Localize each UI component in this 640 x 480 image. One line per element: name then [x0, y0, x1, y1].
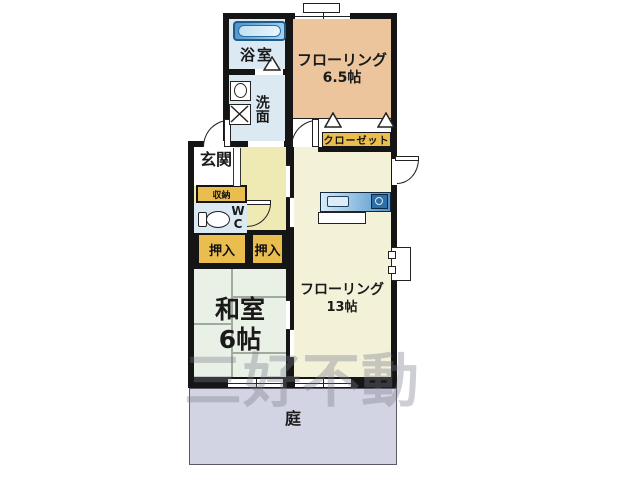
washing-machine-icon: [229, 104, 251, 125]
sliding-door-washitsu-13-a: [286, 300, 290, 330]
washroom-door-opening: [248, 141, 284, 147]
door-arc-right: [397, 159, 419, 184]
right-wall-feature-tick-2: [388, 266, 396, 274]
flooring-6-5-size: 6.5帖: [323, 70, 362, 88]
entrance-label-text: 玄関: [200, 150, 232, 170]
flooring-6-5-label: フローリング 6.5帖: [293, 48, 391, 90]
sink-bowl: [234, 83, 247, 98]
wc-label-c: C: [234, 218, 243, 231]
bathroom-label: 浴室: [229, 45, 285, 65]
oshiire-right-label: 押入: [254, 240, 280, 259]
window-13-tick: [323, 379, 324, 387]
washroom-label-text: 洗面: [252, 95, 270, 123]
flooring-6-5-name: フローリング: [297, 51, 387, 70]
washitsu-name: 和室: [215, 295, 265, 325]
window-washitsu: [228, 379, 283, 387]
window-top: [295, 13, 350, 19]
closet-door-marker-icon-2: [377, 112, 395, 128]
closet-label-text: クローゼット: [324, 132, 390, 147]
entrance-label: 玄関: [195, 149, 237, 171]
wall-bath-65-divider: [285, 13, 293, 147]
kitchen-counter-icon: [320, 192, 391, 212]
garden-label-text: 庭: [285, 409, 301, 429]
door-leaf-wc: [246, 200, 271, 205]
sliding-door-washitsu-13-b: [290, 329, 294, 358]
bathtub-inner: [238, 25, 281, 37]
window-washitsu-tick: [256, 379, 257, 387]
room-flooring-13-floor: [293, 147, 391, 377]
flooring-13-label: フローリング 13帖: [293, 278, 391, 320]
stove-icon: [371, 194, 388, 209]
right-wall-feature-tick-1: [388, 251, 396, 259]
washroom-label: 洗面: [250, 84, 272, 134]
flooring-13-size: 13帖: [326, 300, 357, 316]
wc-label: W C: [228, 203, 248, 233]
wall-bottom: [188, 377, 397, 388]
garden-label: 庭: [189, 407, 397, 431]
wall-13-top: [318, 147, 391, 152]
closet-door-marker-icon-1: [324, 112, 342, 128]
door-leaf-right: [395, 156, 419, 161]
top-vent-marker: [303, 3, 340, 13]
sink-icon: [230, 81, 251, 101]
window-13: [295, 379, 351, 387]
bathtub-icon: [233, 21, 286, 41]
washing-machine-x: [230, 105, 249, 123]
counter-lower: [318, 212, 366, 224]
toilet-icon: [206, 211, 230, 228]
sliding-door-hall-13-a: [286, 165, 290, 198]
oshiire-left-box: 押入: [197, 233, 247, 265]
floor-plan-canvas: 収納 押入 押入 浴室 洗面 フローリング 6.5帖 クローゼット 玄関 W C…: [0, 0, 640, 480]
closet-label-box: クローゼット: [322, 132, 391, 147]
washitsu-size: 6帖: [219, 325, 261, 355]
wall-right: [391, 13, 397, 388]
washitsu-label: 和室 6帖: [194, 293, 286, 357]
oshiire-right-box: 押入: [251, 233, 284, 265]
storage-label: 収納: [212, 188, 230, 201]
window-top-tick: [323, 13, 324, 19]
kitchen-sink: [327, 196, 349, 207]
stove-burner: [375, 197, 383, 205]
bathroom-label-text: 浴室: [240, 46, 274, 65]
door-leaf-6-5: [312, 119, 319, 147]
flooring-13-name: フローリング: [300, 282, 384, 300]
sliding-door-hall-13-b: [290, 197, 294, 228]
storage-box: 収納: [196, 185, 247, 203]
oshiire-left-label: 押入: [209, 240, 235, 259]
